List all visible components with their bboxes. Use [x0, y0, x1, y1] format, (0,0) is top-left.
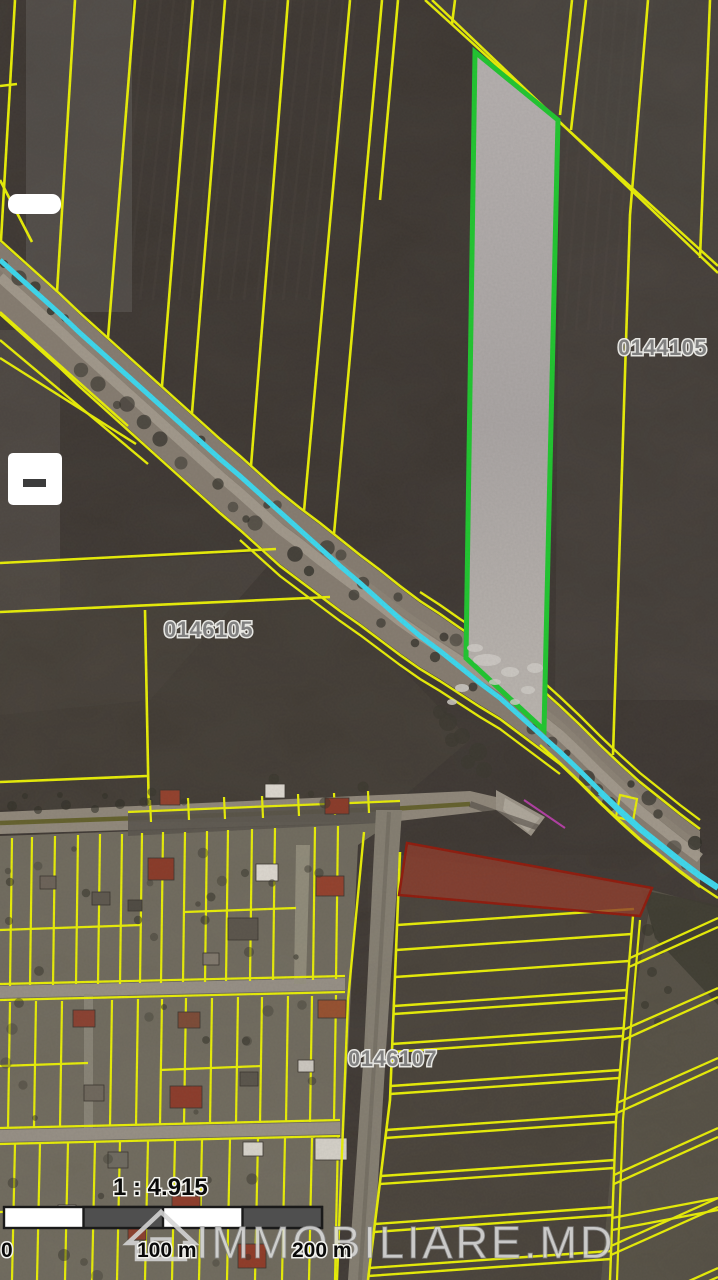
svg-text:200 m: 200 m — [292, 1239, 352, 1262]
svg-text:1 : 4.915: 1 : 4.915 — [113, 1174, 208, 1201]
svg-text:0: 0 — [1, 1239, 13, 1262]
svg-text:100 m: 100 m — [137, 1239, 197, 1262]
svg-text:IMMOBILIARE.MD: IMMOBILIARE.MD — [196, 1217, 616, 1268]
